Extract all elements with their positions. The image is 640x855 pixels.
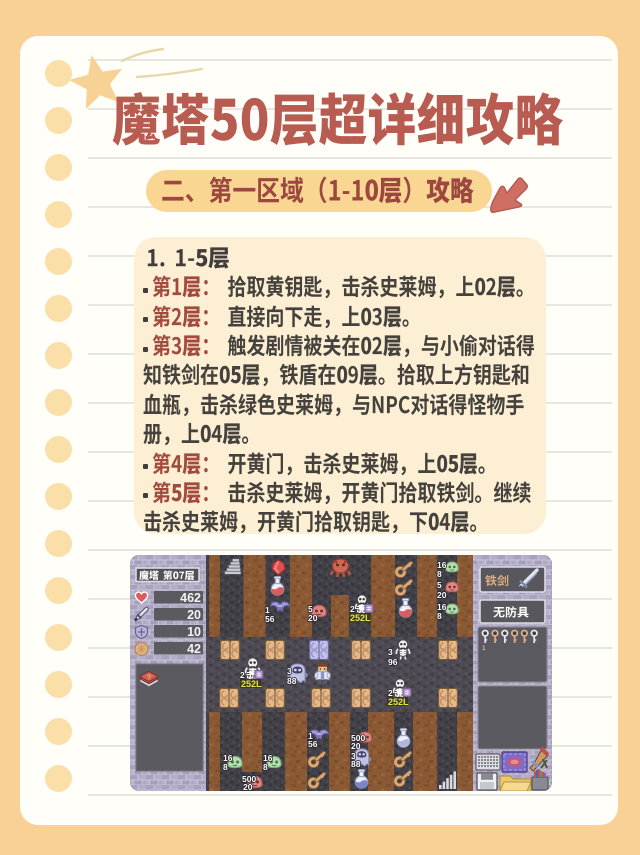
svg-text:252L: 252L (388, 697, 409, 707)
svg-text:42: 42 (187, 642, 201, 656)
svg-text:3: 3 (388, 647, 393, 657)
svg-text:1: 1 (482, 645, 486, 652)
svg-text:20: 20 (243, 782, 253, 791)
svg-text:88: 88 (351, 759, 361, 769)
svg-text:56: 56 (265, 614, 275, 624)
svg-text:462: 462 (180, 591, 201, 605)
svg-text:8: 8 (437, 569, 442, 579)
svg-text:20: 20 (187, 608, 201, 622)
svg-text:252L: 252L (350, 613, 371, 623)
svg-text:252L: 252L (241, 679, 262, 689)
svg-text:20: 20 (308, 613, 318, 623)
svg-text:8: 8 (223, 762, 228, 772)
svg-text:8: 8 (263, 762, 268, 772)
svg-text:56: 56 (308, 739, 318, 749)
svg-text:8: 8 (437, 611, 442, 621)
svg-text:3: 3 (287, 666, 292, 676)
svg-text:5: 5 (437, 580, 442, 590)
svg-text:20: 20 (437, 590, 447, 600)
svg-text:88: 88 (287, 676, 297, 686)
svg-text:96: 96 (388, 657, 398, 667)
svg-text:?: ? (147, 675, 151, 682)
svg-text:10: 10 (187, 625, 201, 639)
